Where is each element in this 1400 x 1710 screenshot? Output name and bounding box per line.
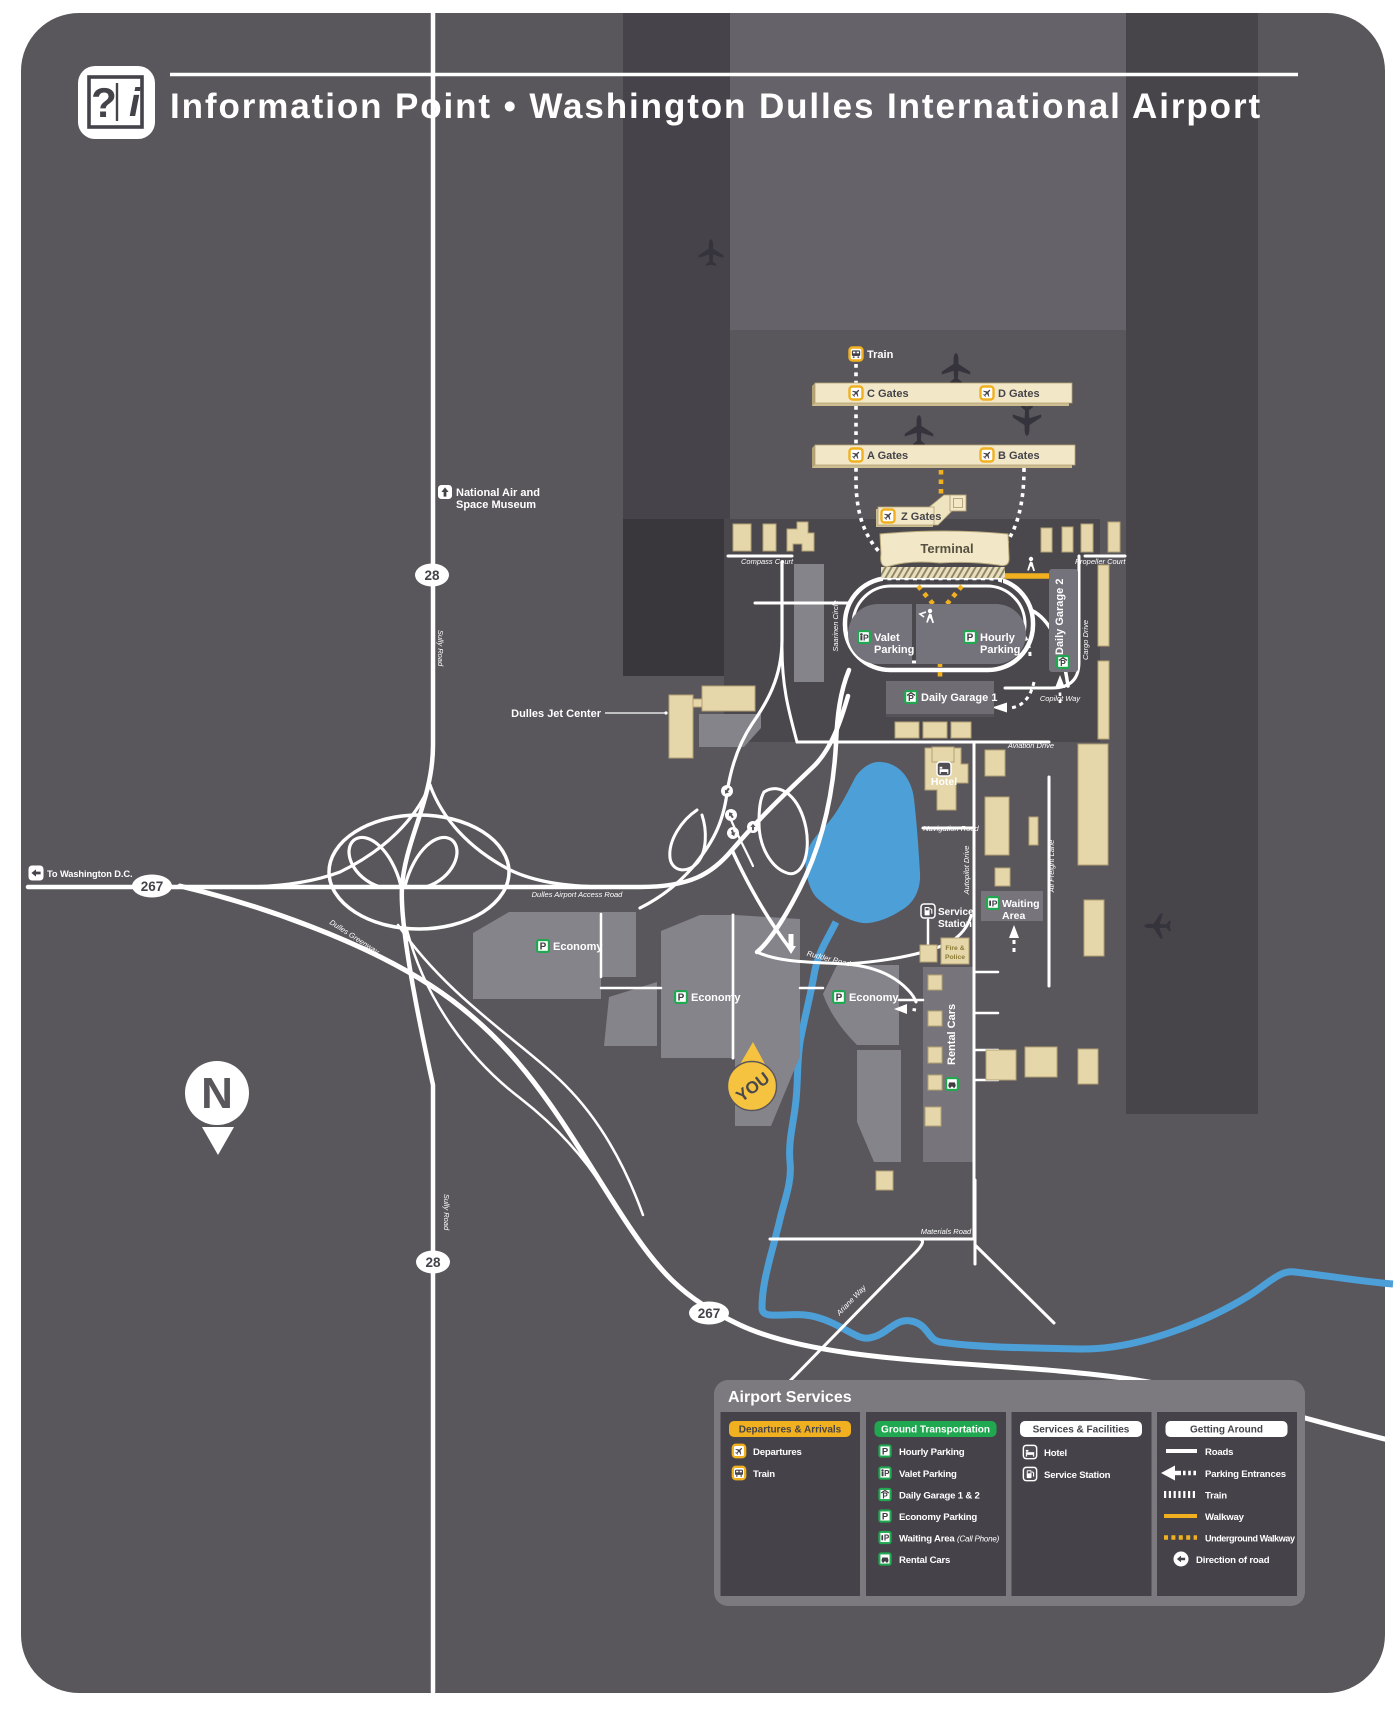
- svg-text:Hourly Parking: Hourly Parking: [899, 1447, 965, 1458]
- svg-text:Materials Road: Materials Road: [921, 1227, 972, 1236]
- svg-text:Dulles Jet Center: Dulles Jet Center: [511, 708, 602, 720]
- svg-text:Direction of road: Direction of road: [1196, 1555, 1270, 1566]
- svg-text:Getting Around: Getting Around: [1190, 1425, 1263, 1436]
- svg-text:Rental Cars: Rental Cars: [946, 1004, 958, 1065]
- svg-text:Hotel: Hotel: [1044, 1448, 1067, 1459]
- svg-text:28: 28: [425, 1255, 441, 1270]
- svg-text:Valet: Valet: [874, 632, 900, 644]
- svg-text:Train: Train: [753, 1469, 775, 1480]
- svg-text:Cargo Drive: Cargo Drive: [1081, 620, 1090, 660]
- svg-text:i: i: [129, 81, 141, 125]
- svg-text:Compass Court: Compass Court: [741, 557, 794, 566]
- svg-text:Service: Service: [938, 907, 974, 918]
- svg-text:Terminal: Terminal: [920, 541, 973, 556]
- svg-text:Economy: Economy: [691, 992, 741, 1004]
- svg-text:Station: Station: [938, 919, 972, 930]
- svg-text:Sully Road: Sully Road: [436, 630, 445, 667]
- svg-text:Parking Entrances: Parking Entrances: [1205, 1469, 1286, 1480]
- svg-text:D Gates: D Gates: [998, 388, 1040, 400]
- svg-text:Police: Police: [945, 954, 965, 961]
- svg-text:B Gates: B Gates: [998, 450, 1040, 462]
- svg-text:Saarinen Circle: Saarinen Circle: [831, 600, 840, 651]
- svg-text:A Gates: A Gates: [867, 450, 908, 462]
- svg-text:Waiting: Waiting: [1002, 898, 1040, 910]
- svg-text:Train: Train: [1205, 1491, 1227, 1502]
- svg-text:Hourly: Hourly: [980, 632, 1016, 644]
- svg-text:Autopilot Drive: Autopilot Drive: [962, 846, 971, 896]
- svg-text:Rental Cars: Rental Cars: [899, 1555, 950, 1566]
- svg-text:All Freight Lane: All Freight Lane: [1047, 840, 1056, 894]
- svg-text:Navigation Road: Navigation Road: [923, 824, 979, 833]
- svg-text:Departures: Departures: [753, 1447, 802, 1458]
- svg-text:Hotel: Hotel: [931, 776, 957, 788]
- svg-text:Economy: Economy: [849, 992, 899, 1004]
- svg-text:267: 267: [141, 879, 164, 894]
- svg-text:Daily Garage 1 & 2: Daily Garage 1 & 2: [899, 1491, 980, 1502]
- svg-text:Aviation Drive: Aviation Drive: [1007, 741, 1054, 750]
- svg-text:N: N: [201, 1069, 233, 1118]
- svg-text:Information Point • Washington: Information Point • Washington Dulles In…: [170, 87, 1262, 126]
- svg-text:Services & Facilities: Services & Facilities: [1033, 1425, 1130, 1436]
- svg-text:Train: Train: [867, 349, 894, 361]
- svg-text:Copilot Way: Copilot Way: [1040, 694, 1082, 703]
- svg-text:C Gates: C Gates: [867, 388, 909, 400]
- svg-text:Ground Transportation: Ground Transportation: [881, 1425, 990, 1436]
- svg-text:Parking: Parking: [874, 644, 914, 656]
- svg-text:Propeller Court: Propeller Court: [1075, 557, 1126, 566]
- svg-text:Economy: Economy: [553, 941, 603, 953]
- svg-text:Roads: Roads: [1205, 1447, 1233, 1458]
- svg-text:Z Gates: Z Gates: [901, 511, 941, 523]
- svg-text:Airport Services: Airport Services: [728, 1389, 852, 1406]
- svg-text:Daily Garage 1: Daily Garage 1: [921, 692, 997, 704]
- svg-text:Area: Area: [1002, 910, 1026, 922]
- svg-text:Valet Parking: Valet Parking: [899, 1469, 957, 1480]
- svg-text:Daily Garage 2: Daily Garage 2: [1054, 579, 1066, 655]
- svg-text:?: ?: [91, 79, 117, 126]
- svg-text:Space Museum: Space Museum: [456, 499, 536, 511]
- svg-text:267: 267: [698, 1306, 721, 1321]
- svg-text:Economy Parking: Economy Parking: [899, 1512, 977, 1523]
- svg-text:Walkway: Walkway: [1205, 1512, 1245, 1523]
- svg-text:National Air and: National Air and: [456, 487, 540, 499]
- svg-text:Waiting Area (Call Phone): Waiting Area (Call Phone): [899, 1534, 1000, 1545]
- svg-text:Dulles Airport Access Road: Dulles Airport Access Road: [532, 890, 624, 899]
- svg-text:Parking: Parking: [980, 644, 1020, 656]
- svg-text:Sully Road: Sully Road: [442, 1194, 451, 1231]
- svg-text:Fire &: Fire &: [945, 945, 964, 952]
- svg-text:Service Station: Service Station: [1044, 1470, 1111, 1481]
- svg-text:To Washington D.C.: To Washington D.C.: [47, 869, 132, 879]
- svg-text:Departures & Arrivals: Departures & Arrivals: [739, 1425, 842, 1436]
- svg-text:Underground Walkway: Underground Walkway: [1205, 1534, 1295, 1544]
- svg-text:28: 28: [424, 568, 440, 583]
